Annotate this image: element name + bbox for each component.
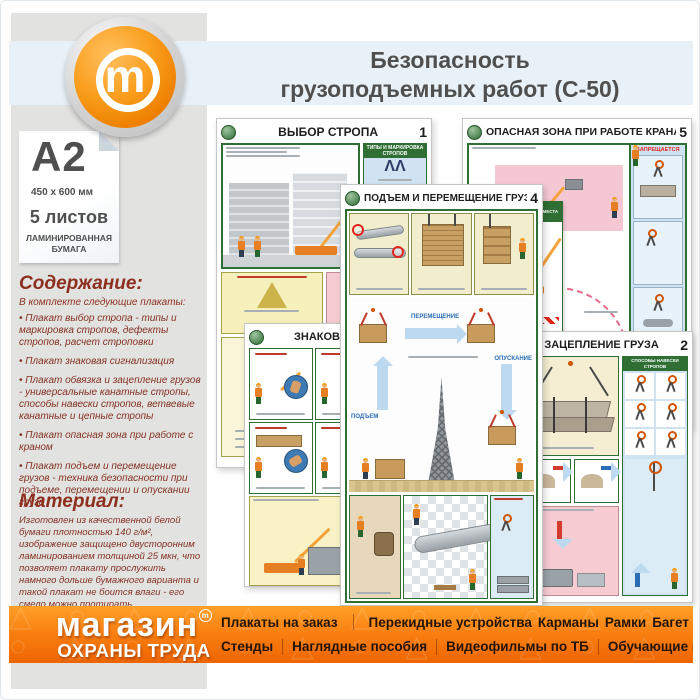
content-item: Плакат выбор стропа - типы и маркировка … bbox=[19, 313, 205, 349]
paper-format-card: A2 450 x 600 мм 5 листов ЛАМИНИРОВАННАЯ … bbox=[19, 131, 119, 263]
hook-cell bbox=[625, 373, 654, 399]
hook-pictogram bbox=[644, 229, 658, 247]
hook-cell bbox=[625, 429, 654, 455]
timber-icon bbox=[434, 585, 456, 590]
red-arrow-icon bbox=[557, 521, 562, 539]
poster-title: ВЫБОР СТРОПА bbox=[240, 125, 416, 139]
text-line bbox=[584, 311, 618, 313]
machine-icon bbox=[577, 573, 605, 587]
poster-header: ЗАЦЕПЛЕНИЕ ГРУЗА 2 bbox=[526, 336, 688, 354]
building bbox=[293, 173, 347, 255]
hook-pictogram bbox=[633, 403, 647, 421]
hook-icon bbox=[649, 461, 662, 474]
red-arrow-icon bbox=[553, 466, 563, 470]
sling-glyphs: ΛΛ bbox=[364, 158, 426, 176]
poster-zaceplenie: ЗАЦЕПЛЕНИЕ ГРУЗА 2 bbox=[521, 331, 693, 603]
worker-figure bbox=[254, 383, 263, 404]
sheets-count: 5 листов bbox=[19, 207, 119, 228]
hanging-methods-column: СПОСОБЫ НАВЕСКИ СТРОПОВ bbox=[622, 356, 688, 596]
hook-pictogram bbox=[633, 375, 647, 393]
org-logo-icon bbox=[467, 125, 482, 140]
format-size: 450 x 600 мм bbox=[31, 187, 93, 198]
hook-cell bbox=[625, 401, 654, 427]
menu-item-stendy[interactable]: Стенды bbox=[221, 639, 273, 654]
hand-signal-icon bbox=[284, 375, 308, 399]
sling-line-icon bbox=[428, 214, 430, 226]
registered-mark-icon: m bbox=[199, 609, 212, 622]
menu-item-karmany[interactable]: Карманы bbox=[538, 615, 599, 630]
worker-figure bbox=[297, 554, 306, 575]
worker-figure bbox=[468, 569, 477, 590]
poster-header: ПОДЪЕМ И ПЕРЕМЕЩЕНИЕ ГРУЗА 4 bbox=[345, 189, 538, 207]
hook-pictogram bbox=[664, 375, 678, 393]
red-text-line bbox=[237, 276, 307, 278]
material-text: Изготовлен из качественной белой бумаги … bbox=[19, 515, 203, 611]
worker-hook-cell bbox=[625, 459, 685, 593]
forbidden-label: ЗАПРЕЩАЕТСЯ bbox=[631, 147, 685, 153]
page-title-line1: Безопасность bbox=[211, 46, 689, 75]
text-line bbox=[534, 447, 594, 449]
poster-number: 5 bbox=[679, 124, 687, 140]
worker-figure bbox=[254, 457, 263, 478]
top-examples-band bbox=[349, 213, 534, 295]
poster-collage: ВЫБОР СТРОПА 1 bbox=[206, 105, 693, 606]
store-brand-line1: магазинm bbox=[39, 609, 229, 641]
sling-line-icon bbox=[589, 366, 609, 396]
text-line bbox=[244, 310, 299, 312]
crate-stack-icon bbox=[483, 226, 511, 264]
store-logo[interactable]: m bbox=[65, 17, 185, 137]
page-title-line2: грузоподъемных работ (С-50) bbox=[211, 75, 689, 104]
org-logo-icon bbox=[249, 330, 264, 345]
worker-figure bbox=[237, 236, 246, 257]
menu-item-ramki[interactable]: Рамки bbox=[605, 615, 646, 630]
sling-line-icon bbox=[454, 214, 456, 226]
footer-menu-row-2: Стенды Наглядные пособия Видеофильмы по … bbox=[221, 639, 689, 655]
text-line bbox=[356, 288, 403, 290]
forbidden-picto bbox=[633, 221, 683, 285]
warning-circle-icon bbox=[352, 224, 364, 236]
worker-figure bbox=[515, 458, 524, 479]
sling-types-title: ТИПЫ И МАРКИРОВКА СТРОПОВ bbox=[364, 144, 426, 158]
pipe-floor-panel bbox=[403, 495, 488, 599]
paper-type: ЛАМИНИРОВАННАЯ БУМАГА bbox=[19, 233, 119, 255]
poster-body: ПЕРЕМЕЩЕНИЕ ОПУСКАНИЕ ПОДЪЕМ bbox=[345, 209, 538, 603]
menu-separator bbox=[436, 639, 437, 655]
footer-menu-row-1: Плакаты на заказ Перекидные устройства К… bbox=[221, 614, 689, 630]
poster-number: 1 bbox=[419, 124, 427, 140]
move-arrow-icon bbox=[405, 328, 457, 339]
footer-menu: Плакаты на заказ Перекидные устройства К… bbox=[221, 606, 689, 663]
signal-cell bbox=[249, 348, 313, 420]
menu-separator bbox=[353, 614, 354, 630]
page-title: Безопасность грузоподъемных работ (С-50) bbox=[211, 46, 689, 104]
hook-icon bbox=[568, 361, 573, 366]
poster-number: 4 bbox=[530, 190, 538, 206]
worker-figure bbox=[356, 516, 365, 537]
bottom-panels-band bbox=[349, 495, 534, 599]
pipes-example-cell bbox=[349, 213, 409, 295]
store-logo-ball-icon: m bbox=[74, 26, 176, 128]
org-logo-icon bbox=[345, 191, 360, 206]
hook-cell bbox=[656, 401, 685, 427]
red-text-line bbox=[255, 353, 287, 355]
poster-title: ЗАЦЕПЛЕНИЕ ГРУЗА bbox=[526, 339, 677, 351]
material-heading: Материал: bbox=[19, 491, 205, 513]
poster-header: ОПАСНАЯ ЗОНА ПРИ РАБОТЕ КРАНА 5 bbox=[467, 123, 687, 141]
hook-pictogram bbox=[664, 403, 678, 421]
gantry-crane-icon bbox=[256, 435, 302, 447]
worker-figure bbox=[253, 236, 262, 257]
poster-title: ОПАСНАЯ ЗОНА ПРИ РАБОТЕ КРАНА bbox=[486, 126, 676, 138]
move-label: ПЕРЕМЕЩЕНИЕ bbox=[411, 314, 459, 320]
worker-figure bbox=[518, 238, 527, 259]
content-intro: В комплекте следующие плакаты: bbox=[19, 297, 203, 308]
forbidden-picto bbox=[633, 155, 683, 219]
lift-arrow-icon bbox=[377, 366, 388, 410]
strap-icon bbox=[585, 397, 587, 433]
lattice-tower-icon bbox=[415, 377, 469, 481]
text-line bbox=[356, 592, 391, 594]
lower-label: ОПУСКАНИЕ bbox=[494, 356, 532, 362]
menu-item-perekidnye-ustroystva[interactable]: Перекидные устройства bbox=[369, 615, 532, 630]
brick-row-icon bbox=[497, 585, 529, 593]
lift-label: ПОДЪЕМ bbox=[351, 414, 378, 420]
triangle-diagram bbox=[257, 282, 287, 308]
lift-sequence-scene: ПЕРЕМЕЩЕНИЕ ОПУСКАНИЕ ПОДЪЕМ bbox=[349, 298, 534, 492]
slab-icon bbox=[533, 401, 611, 418]
crates-example-cell bbox=[474, 213, 534, 295]
menu-item-obuchayushchie-programmy[interactable]: Обучающие программы bbox=[608, 639, 693, 654]
sling-line-icon bbox=[489, 214, 491, 228]
hanging-crate-icon bbox=[359, 324, 387, 343]
stacking-panel bbox=[490, 495, 534, 599]
worker-figure bbox=[610, 197, 619, 218]
store-logo-letter: m bbox=[74, 46, 176, 106]
product-card: A2 450 x 600 мм 5 листов ЛАМИНИРОВАННАЯ … bbox=[0, 0, 700, 700]
store-brand[interactable]: магазинm ОХРАНЫ ТРУДА bbox=[39, 609, 229, 661]
pull-direction-cell bbox=[574, 459, 619, 503]
hanging-crate-icon bbox=[467, 324, 495, 343]
pipe-icon bbox=[643, 319, 673, 327]
worker-barrel-panel bbox=[349, 495, 401, 599]
hanging-crate-icon bbox=[488, 426, 516, 445]
format-label: A2 bbox=[31, 133, 87, 181]
brick-row-icon bbox=[497, 576, 529, 584]
lower-arrow-icon bbox=[501, 364, 512, 410]
ground-crate-icon bbox=[375, 459, 405, 479]
poster-header: ВЫБОР СТРОПА 1 bbox=[221, 123, 427, 141]
content-item: Плакат знаковая сигнализация bbox=[19, 356, 205, 368]
menu-separator bbox=[598, 639, 599, 655]
text-line bbox=[481, 288, 528, 290]
worker-figure bbox=[670, 568, 679, 589]
hook-pictogram bbox=[633, 431, 647, 449]
hook-cell bbox=[656, 429, 685, 455]
hook-pictogram bbox=[499, 514, 513, 532]
hook-grid bbox=[623, 371, 687, 457]
text-line bbox=[253, 499, 319, 501]
poster-body: СПОСОБЫ НАВЕСКИ СТРОПОВ bbox=[526, 356, 688, 596]
footer-bar: магазинm ОХРАНЫ ТРУДА Плакаты на заказ П… bbox=[9, 606, 693, 663]
ground-strip bbox=[349, 480, 534, 492]
store-brand-word: магазин bbox=[56, 606, 198, 644]
menu-separator bbox=[282, 639, 283, 655]
red-text-line bbox=[255, 427, 287, 429]
poster-number: 2 bbox=[680, 337, 688, 353]
text-line bbox=[226, 155, 300, 157]
hanging-methods-title: СПОСОБЫ НАВЕСКИ СТРОПОВ bbox=[623, 357, 687, 371]
text-line bbox=[256, 487, 305, 489]
load-icon bbox=[640, 185, 676, 197]
text-line bbox=[226, 147, 300, 149]
worker-figure bbox=[412, 504, 421, 525]
content-item: Плакат обвязка и зацепление грузов - уни… bbox=[19, 375, 205, 423]
text-line bbox=[226, 151, 287, 153]
hanging-load-icon bbox=[565, 179, 583, 190]
worker-figure bbox=[361, 458, 370, 479]
text-line bbox=[472, 147, 536, 149]
worker-figure bbox=[320, 383, 329, 404]
big-pipe-icon bbox=[413, 523, 499, 554]
poster-title: ПОДЪЕМ И ПЕРЕМЕЩЕНИЕ ГРУЗА bbox=[364, 193, 527, 204]
menu-item-plakaty-na-zakaz[interactable]: Плакаты на заказ bbox=[221, 615, 338, 630]
plank-stack-icon bbox=[422, 224, 464, 266]
menu-item-naglyadnye-posobiya[interactable]: Наглядные пособия bbox=[292, 639, 427, 654]
content-heading: Содержание: bbox=[19, 273, 205, 295]
stone-icon bbox=[581, 474, 603, 488]
text-line bbox=[256, 413, 305, 415]
crane-truck-icon bbox=[264, 563, 300, 573]
hook-cell bbox=[656, 373, 685, 399]
barrel-icon bbox=[374, 532, 394, 556]
text-line bbox=[378, 179, 412, 181]
slab-icon bbox=[537, 417, 615, 432]
org-logo-icon bbox=[221, 125, 236, 140]
worker-figure bbox=[320, 457, 329, 478]
store-brand-line2: ОХРАНЫ ТРУДА bbox=[39, 641, 229, 661]
red-text-line bbox=[494, 498, 523, 500]
worker-figure bbox=[663, 226, 672, 247]
signal-cell bbox=[249, 422, 313, 494]
crane-truck-icon bbox=[295, 246, 337, 255]
hand-signal-icon bbox=[284, 449, 308, 473]
text-line bbox=[418, 288, 465, 290]
blue-arrow-icon bbox=[601, 466, 611, 470]
blue-arrow-icon bbox=[635, 573, 640, 587]
poster-podyem: ПОДЪЕМ И ПЕРЕМЕЩЕНИЕ ГРУЗА 4 bbox=[340, 184, 543, 606]
content-list: Плакат выбор стропа - типы и маркировка … bbox=[19, 313, 205, 516]
hook-pictogram bbox=[664, 431, 678, 449]
text-line bbox=[408, 356, 478, 358]
strap-icon bbox=[553, 397, 555, 433]
hook-pictogram bbox=[651, 160, 665, 178]
hook-pictogram bbox=[651, 294, 665, 312]
planks-example-cell bbox=[411, 213, 471, 295]
menu-item-baget[interactable]: Багет bbox=[652, 615, 689, 630]
menu-item-videofilmy-po-tb[interactable]: Видеофильмы по ТБ bbox=[446, 639, 589, 654]
content-item: Плакат опасная зона при работе с краном bbox=[19, 430, 205, 454]
